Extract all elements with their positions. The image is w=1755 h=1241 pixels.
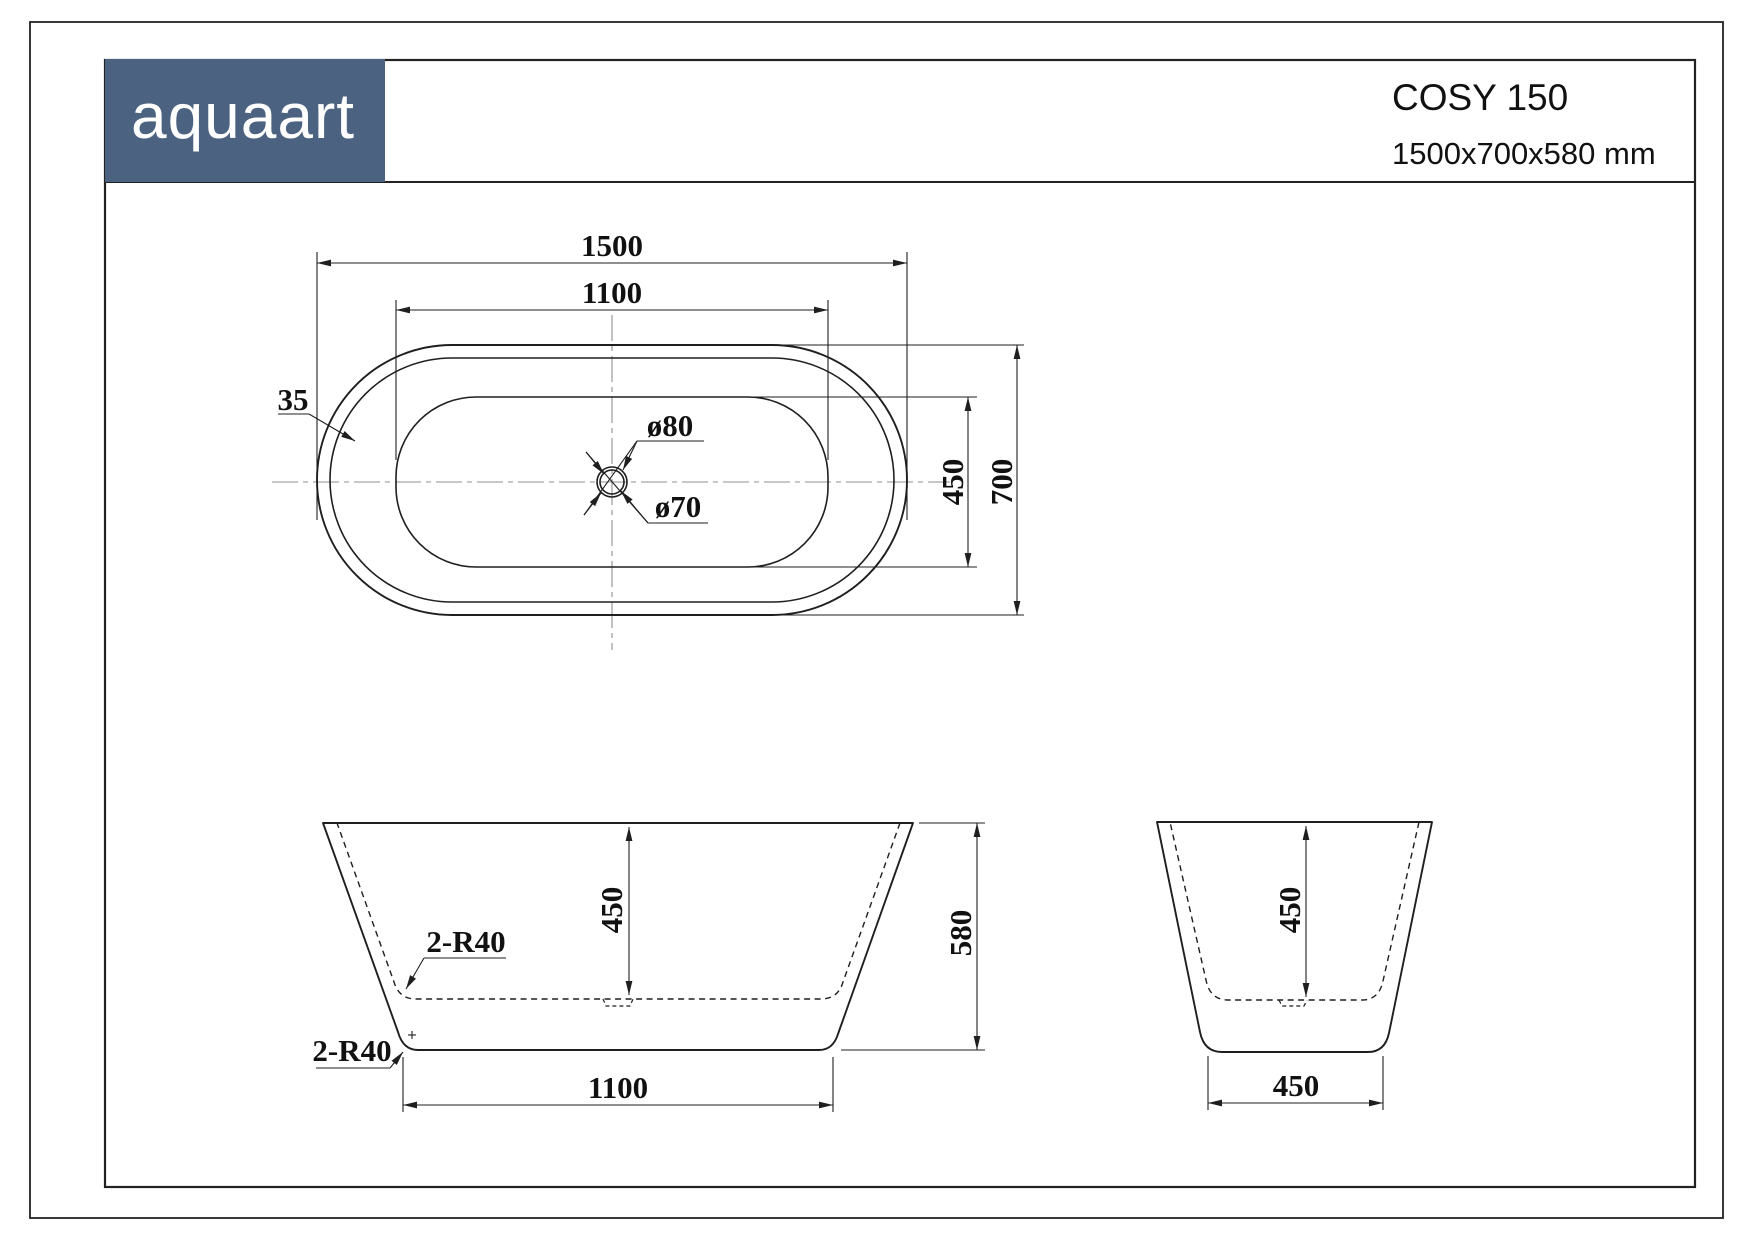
dim-label-1500: 1500	[581, 228, 643, 263]
dim-label-1100: 1100	[582, 275, 642, 310]
dim-bottom-length-1100: 1100	[403, 1057, 833, 1112]
dim-label-r40-outer: 2-R40	[312, 1033, 391, 1068]
dim-label-drain-70: ø70	[655, 489, 702, 524]
top-view: 1500 1100 700 450 35	[272, 228, 1024, 650]
drawing-sheet: aquaart COSY 150 1500x700x580 mm 1500 1	[0, 0, 1755, 1241]
side-view: 450 580 2-R40 2-R40 1100	[312, 823, 985, 1112]
dim-label-450-top: 450	[935, 459, 970, 506]
dim-outer-radius-r40: 2-R40	[312, 1033, 403, 1068]
dim-label-1100-bottom: 1100	[588, 1070, 648, 1105]
end-view: 450 450	[1157, 822, 1432, 1110]
side-drain-notch	[603, 999, 633, 1006]
logo: aquaart	[105, 59, 385, 182]
dim-end-bottom-450: 450	[1208, 1056, 1383, 1110]
outer-border	[30, 22, 1723, 1218]
side-outer-profile	[323, 823, 913, 1050]
model-name: COSY 150	[1392, 77, 1568, 118]
dim-inner-radius-r40: 2-R40	[406, 924, 506, 989]
dim-label-450-end-bottom: 450	[1273, 1068, 1320, 1103]
dim-drain-70: ø70	[586, 452, 708, 524]
dim-label-450-end-depth: 450	[1272, 887, 1307, 934]
dim-label-580: 580	[943, 910, 978, 957]
dim-side-depth-450: 450	[594, 827, 629, 995]
dim-rim-35: 35	[278, 382, 356, 441]
radius-center-mark	[408, 1031, 416, 1039]
logo-text: aquaart	[131, 80, 355, 152]
dim-width-700: 700	[772, 345, 1024, 615]
technical-drawing: aquaart COSY 150 1500x700x580 mm 1500 1	[0, 0, 1755, 1241]
model-dimensions: 1500x700x580 mm	[1392, 136, 1656, 171]
end-outer-profile	[1157, 822, 1432, 1052]
title-block: COSY 150 1500x700x580 mm	[1392, 77, 1656, 171]
dim-label-35: 35	[278, 382, 309, 417]
dim-side-height-580: 580	[841, 823, 985, 1050]
dim-label-r40-inner: 2-R40	[426, 924, 505, 959]
dim-end-depth-450: 450	[1272, 826, 1307, 997]
dim-label-drain-80: ø80	[647, 408, 694, 443]
inner-border	[105, 60, 1695, 1187]
end-drain-notch	[1279, 1000, 1307, 1006]
dim-label-450-side: 450	[594, 887, 629, 934]
dim-label-700: 700	[984, 459, 1019, 506]
